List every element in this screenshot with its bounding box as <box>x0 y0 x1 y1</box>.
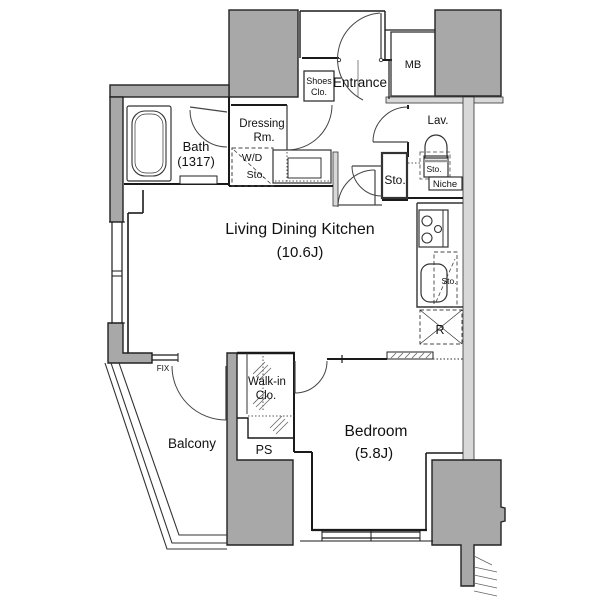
hanger-hatch <box>270 416 288 434</box>
label-meter-box: MB <box>405 59 422 71</box>
room-labels: Shoes Clo. Entrance MB Lav. Sto. Niche S… <box>157 59 457 462</box>
label-shoes-closet: Clo. <box>311 87 327 97</box>
pillar-top-left <box>229 10 298 97</box>
label-refrigerator: R <box>435 323 444 337</box>
floorplan-page: Shoes Clo. Entrance MB Lav. Sto. Niche S… <box>0 0 600 600</box>
wall-left-upper <box>110 97 123 222</box>
label-shoes-closet: Shoes <box>306 76 332 86</box>
label-niche: Niche <box>433 179 457 190</box>
fix-window <box>152 355 178 360</box>
wall-top-right <box>386 97 503 103</box>
label-ldk: Living Dining Kitchen <box>225 221 374 238</box>
sliding-door <box>342 352 463 363</box>
lavatory-door-arc <box>373 107 408 142</box>
label-bath-size: (1317) <box>177 154 215 169</box>
pillar-top-right <box>435 10 501 96</box>
ldk-side-window <box>112 222 122 323</box>
bathtub-icon <box>132 111 166 176</box>
closet-door-arc <box>295 361 327 393</box>
label-dressing: Rm. <box>253 132 274 144</box>
label-bath: Bath <box>183 139 210 154</box>
wall-left-lower <box>108 323 152 363</box>
label-hall-storage: Sto. <box>384 173 405 187</box>
label-entrance: Entrance <box>333 75 387 90</box>
label-bedroom: Bedroom <box>345 423 408 440</box>
pillar-bottom-right <box>432 460 505 586</box>
sink-basin-icon <box>288 158 321 178</box>
section-hatch <box>474 556 497 596</box>
balcony-railing <box>105 363 227 549</box>
label-bedroom-size: (5.8J) <box>355 445 393 462</box>
dressing-door-arc <box>287 105 332 150</box>
label-dressing: Dressing <box>239 118 284 130</box>
label-pipe-space: PS <box>256 443 273 457</box>
wall-corridor <box>333 152 338 206</box>
burner-icon <box>422 233 432 243</box>
balcony-door-arc <box>172 366 226 420</box>
bath-step <box>180 176 217 184</box>
burner-icon <box>435 226 442 233</box>
burner-icon <box>422 216 432 226</box>
wall-top-outer <box>110 85 229 97</box>
label-walkin-closet: Walk-in <box>248 376 286 388</box>
ldk-door-arc <box>338 170 375 207</box>
label-wd: Sto. <box>247 169 266 181</box>
label-wd: W/D <box>242 152 263 164</box>
label-lav-storage: Sto. <box>426 164 441 174</box>
wall-right <box>463 97 474 460</box>
kitchen-counter <box>417 203 463 307</box>
label-kitchen-storage: Sto. <box>441 276 456 286</box>
toilet-icon <box>425 135 447 158</box>
label-fix-window: FIX <box>157 364 170 373</box>
label-lavatory: Lav. <box>428 115 449 127</box>
label-balcony: Balcony <box>168 436 216 451</box>
label-walkin-closet: Clo. <box>256 390 276 402</box>
light-walls <box>333 97 503 460</box>
floorplan-image: Shoes Clo. Entrance MB Lav. Sto. Niche S… <box>0 0 600 600</box>
label-ldk-size: (10.6J) <box>277 244 324 261</box>
